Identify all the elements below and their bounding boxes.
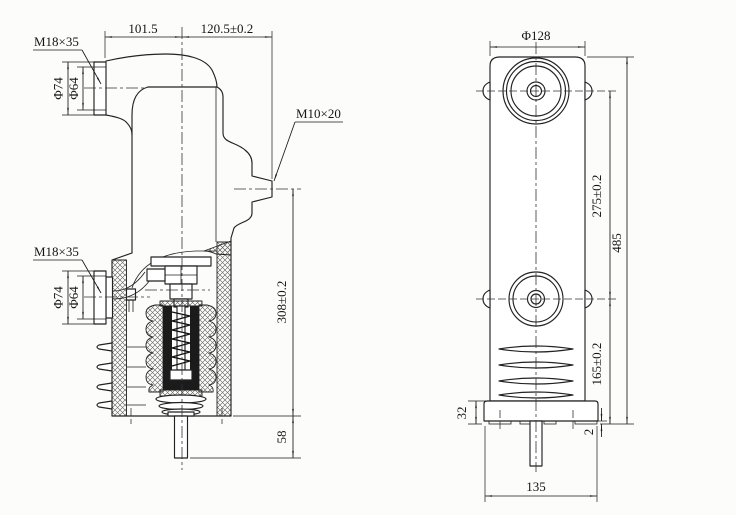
lower-boss-barrel bbox=[106, 277, 113, 318]
terminal-top-plate bbox=[151, 257, 211, 266]
dim-label-101-5: 101.5 bbox=[128, 21, 157, 36]
dim-label-2: 2 bbox=[581, 429, 596, 436]
dim-label-135: 135 bbox=[526, 479, 546, 494]
dim-label-275: 275±0.2 bbox=[589, 175, 604, 218]
bellows-top-band bbox=[160, 301, 202, 306]
dim-label-dia74-top: Φ74 bbox=[51, 77, 66, 100]
terminal-side-bolt bbox=[147, 269, 165, 281]
upper-boss-plate bbox=[94, 62, 106, 115]
technical-drawing: 101.5 120.5±0.2 Φ74 Φ64 M18×35 Φ74 Φ64 M… bbox=[0, 0, 736, 515]
dim-label-dia64-top: Φ64 bbox=[66, 77, 81, 100]
label-m10x20: M10×20 bbox=[296, 106, 341, 121]
base-flange bbox=[484, 401, 598, 421]
housing-right-wall bbox=[217, 242, 231, 416]
stem-boss bbox=[168, 412, 194, 416]
lower-terminal-boss bbox=[94, 271, 113, 324]
upper-terminal-boss bbox=[94, 62, 106, 115]
dim-label-485: 485 bbox=[609, 233, 624, 253]
dim-label-dia74-bottom: Φ74 bbox=[51, 286, 66, 309]
bellows-right bbox=[199, 305, 216, 392]
dim-label-dia64-bottom: Φ64 bbox=[66, 286, 81, 309]
lower-boss-plate bbox=[94, 271, 106, 324]
front-body bbox=[483, 57, 598, 466]
dim-label-58: 58 bbox=[274, 431, 289, 444]
paper-background bbox=[0, 0, 736, 515]
lower-bellows-1 bbox=[156, 395, 206, 403]
operating-stem bbox=[175, 416, 188, 458]
dim-label-308: 308±0.2 bbox=[274, 281, 289, 324]
piston-guide bbox=[170, 370, 192, 380]
dim-label-dia128: Φ128 bbox=[521, 28, 550, 43]
dim-label-120-5: 120.5±0.2 bbox=[201, 21, 254, 36]
housing-left-wall bbox=[112, 260, 127, 416]
bellows-left bbox=[146, 305, 163, 392]
label-m18x35-bottom: M18×35 bbox=[34, 244, 79, 259]
label-m18x35-top: M18×35 bbox=[34, 34, 79, 49]
drawing-canvas: 101.5 120.5±0.2 Φ74 Φ64 M18×35 Φ74 Φ64 M… bbox=[0, 0, 736, 515]
terminal-lower-block bbox=[170, 284, 192, 299]
dim-label-32: 32 bbox=[454, 407, 469, 420]
dim-label-165: 165±0.2 bbox=[589, 343, 604, 386]
